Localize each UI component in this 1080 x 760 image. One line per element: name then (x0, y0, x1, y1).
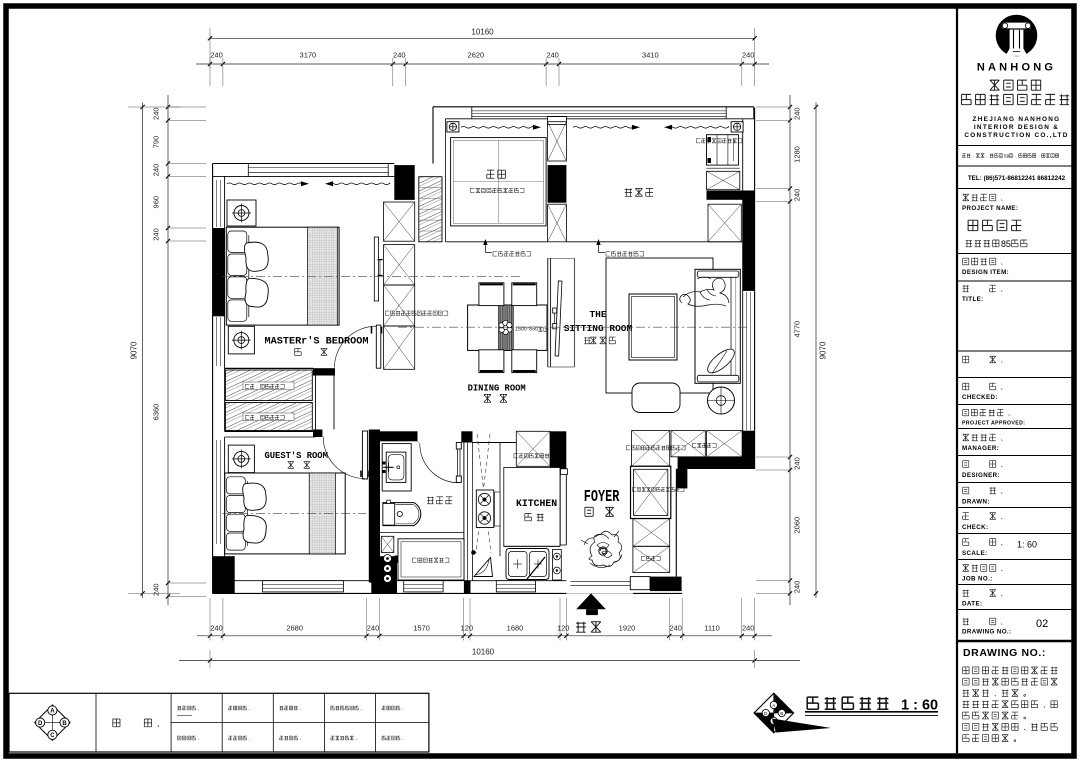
svg-text:DESIGN ITEM:: DESIGN ITEM: (962, 269, 1009, 276)
svg-text:2620: 2620 (468, 51, 485, 60)
svg-text:SITTING ROOM: SITTING ROOM (564, 323, 633, 334)
svg-text:240: 240 (210, 624, 223, 633)
svg-text:DRAWING NO.:: DRAWING NO.: (963, 647, 1046, 659)
svg-text:TITLE:: TITLE: (962, 296, 984, 303)
svg-text:PROJECT NAME:: PROJECT NAME: (962, 205, 1018, 212)
svg-text:D: D (38, 721, 43, 727)
svg-text:DRAWING NO.:: DRAWING NO.: (962, 629, 1011, 636)
svg-text:3410: 3410 (642, 51, 659, 60)
svg-text:85: 85 (1001, 239, 1011, 249)
svg-text:DINING ROOM: DINING ROOM (468, 384, 526, 394)
svg-text:SCALE:: SCALE: (962, 550, 987, 557)
svg-text:B: B (62, 721, 67, 727)
svg-text:02: 02 (1036, 618, 1048, 630)
svg-text:THE: THE (589, 309, 606, 320)
svg-text:KITCHEN: KITCHEN (516, 498, 557, 509)
svg-text:240: 240 (152, 107, 161, 120)
svg-text:2060: 2060 (793, 517, 802, 534)
svg-text:1920: 1920 (619, 624, 636, 633)
svg-text:INTERIOR DESIGN &: INTERIOR DESIGN & (974, 124, 1059, 131)
svg-text:240: 240 (546, 51, 559, 60)
svg-text:3170: 3170 (300, 51, 317, 60)
svg-text:MASTERr'S BEDROOM: MASTERr'S BEDROOM (265, 336, 369, 348)
svg-text:CONSTRUCTION CO.,LTD: CONSTRUCTION CO.,LTD (964, 132, 1068, 139)
svg-text:240: 240 (210, 51, 223, 60)
svg-text:MANAGER:: MANAGER: (962, 445, 999, 452)
svg-text:A: A (50, 709, 55, 715)
svg-text:NANHONG: NANHONG (977, 62, 1056, 74)
svg-text:240: 240 (742, 51, 755, 60)
svg-text:240: 240 (793, 107, 802, 120)
svg-text:9070: 9070 (130, 341, 139, 359)
svg-text:PROJECT APPROVED:: PROJECT APPROVED: (962, 421, 1025, 427)
svg-text:CHECK:: CHECK: (962, 524, 988, 531)
svg-text:120: 120 (557, 624, 570, 633)
svg-text:A: A (772, 703, 775, 708)
svg-text:240: 240 (152, 228, 161, 241)
svg-text:FOYER: FOYER (584, 487, 620, 506)
svg-text:DESIGNER:: DESIGNER: (962, 472, 1000, 479)
svg-text:240: 240 (152, 164, 161, 177)
svg-text:10160: 10160 (472, 648, 495, 657)
svg-text:240: 240 (793, 457, 802, 470)
svg-text:120: 120 (461, 624, 474, 633)
svg-text:960: 960 (152, 196, 161, 209)
svg-text:240: 240 (742, 624, 755, 633)
svg-text:1: 60: 1: 60 (1017, 540, 1037, 550)
svg-text:240: 240 (367, 624, 380, 633)
svg-text:240: 240 (793, 581, 802, 594)
svg-text:10160: 10160 (471, 28, 494, 37)
svg-text:C: C (50, 733, 55, 739)
svg-text:240: 240 (669, 624, 682, 633)
svg-text:240: 240 (152, 583, 161, 596)
svg-text:B: B (780, 711, 783, 716)
svg-text:790: 790 (152, 136, 161, 149)
svg-text:2680: 2680 (286, 624, 303, 633)
svg-text:240: 240 (393, 51, 406, 60)
svg-text:1280: 1280 (793, 146, 802, 163)
svg-text:DRAWN:: DRAWN: (962, 499, 990, 506)
svg-text:ZHEJIANG NANHONG: ZHEJIANG NANHONG (973, 116, 1061, 123)
svg-text:TEL: (86)571-86812241 86812242: TEL: (86)571-86812241 86812242 (968, 175, 1066, 182)
svg-text:6360: 6360 (152, 404, 161, 421)
svg-text:GUEST'S ROOM: GUEST'S ROOM (265, 451, 328, 461)
svg-text:59: 59 (1004, 154, 1010, 160)
svg-text:4770: 4770 (793, 321, 802, 338)
svg-text:9070: 9070 (819, 341, 828, 359)
svg-text:1570: 1570 (413, 624, 430, 633)
svg-text:240: 240 (793, 189, 802, 202)
svg-text:DATE:: DATE: (962, 601, 982, 608)
svg-text:1110: 1110 (704, 624, 720, 633)
svg-text:1680: 1680 (507, 624, 524, 633)
svg-text:JOB NO.:: JOB NO.: (962, 576, 993, 583)
svg-text:CHECKED:: CHECKED: (962, 394, 998, 401)
